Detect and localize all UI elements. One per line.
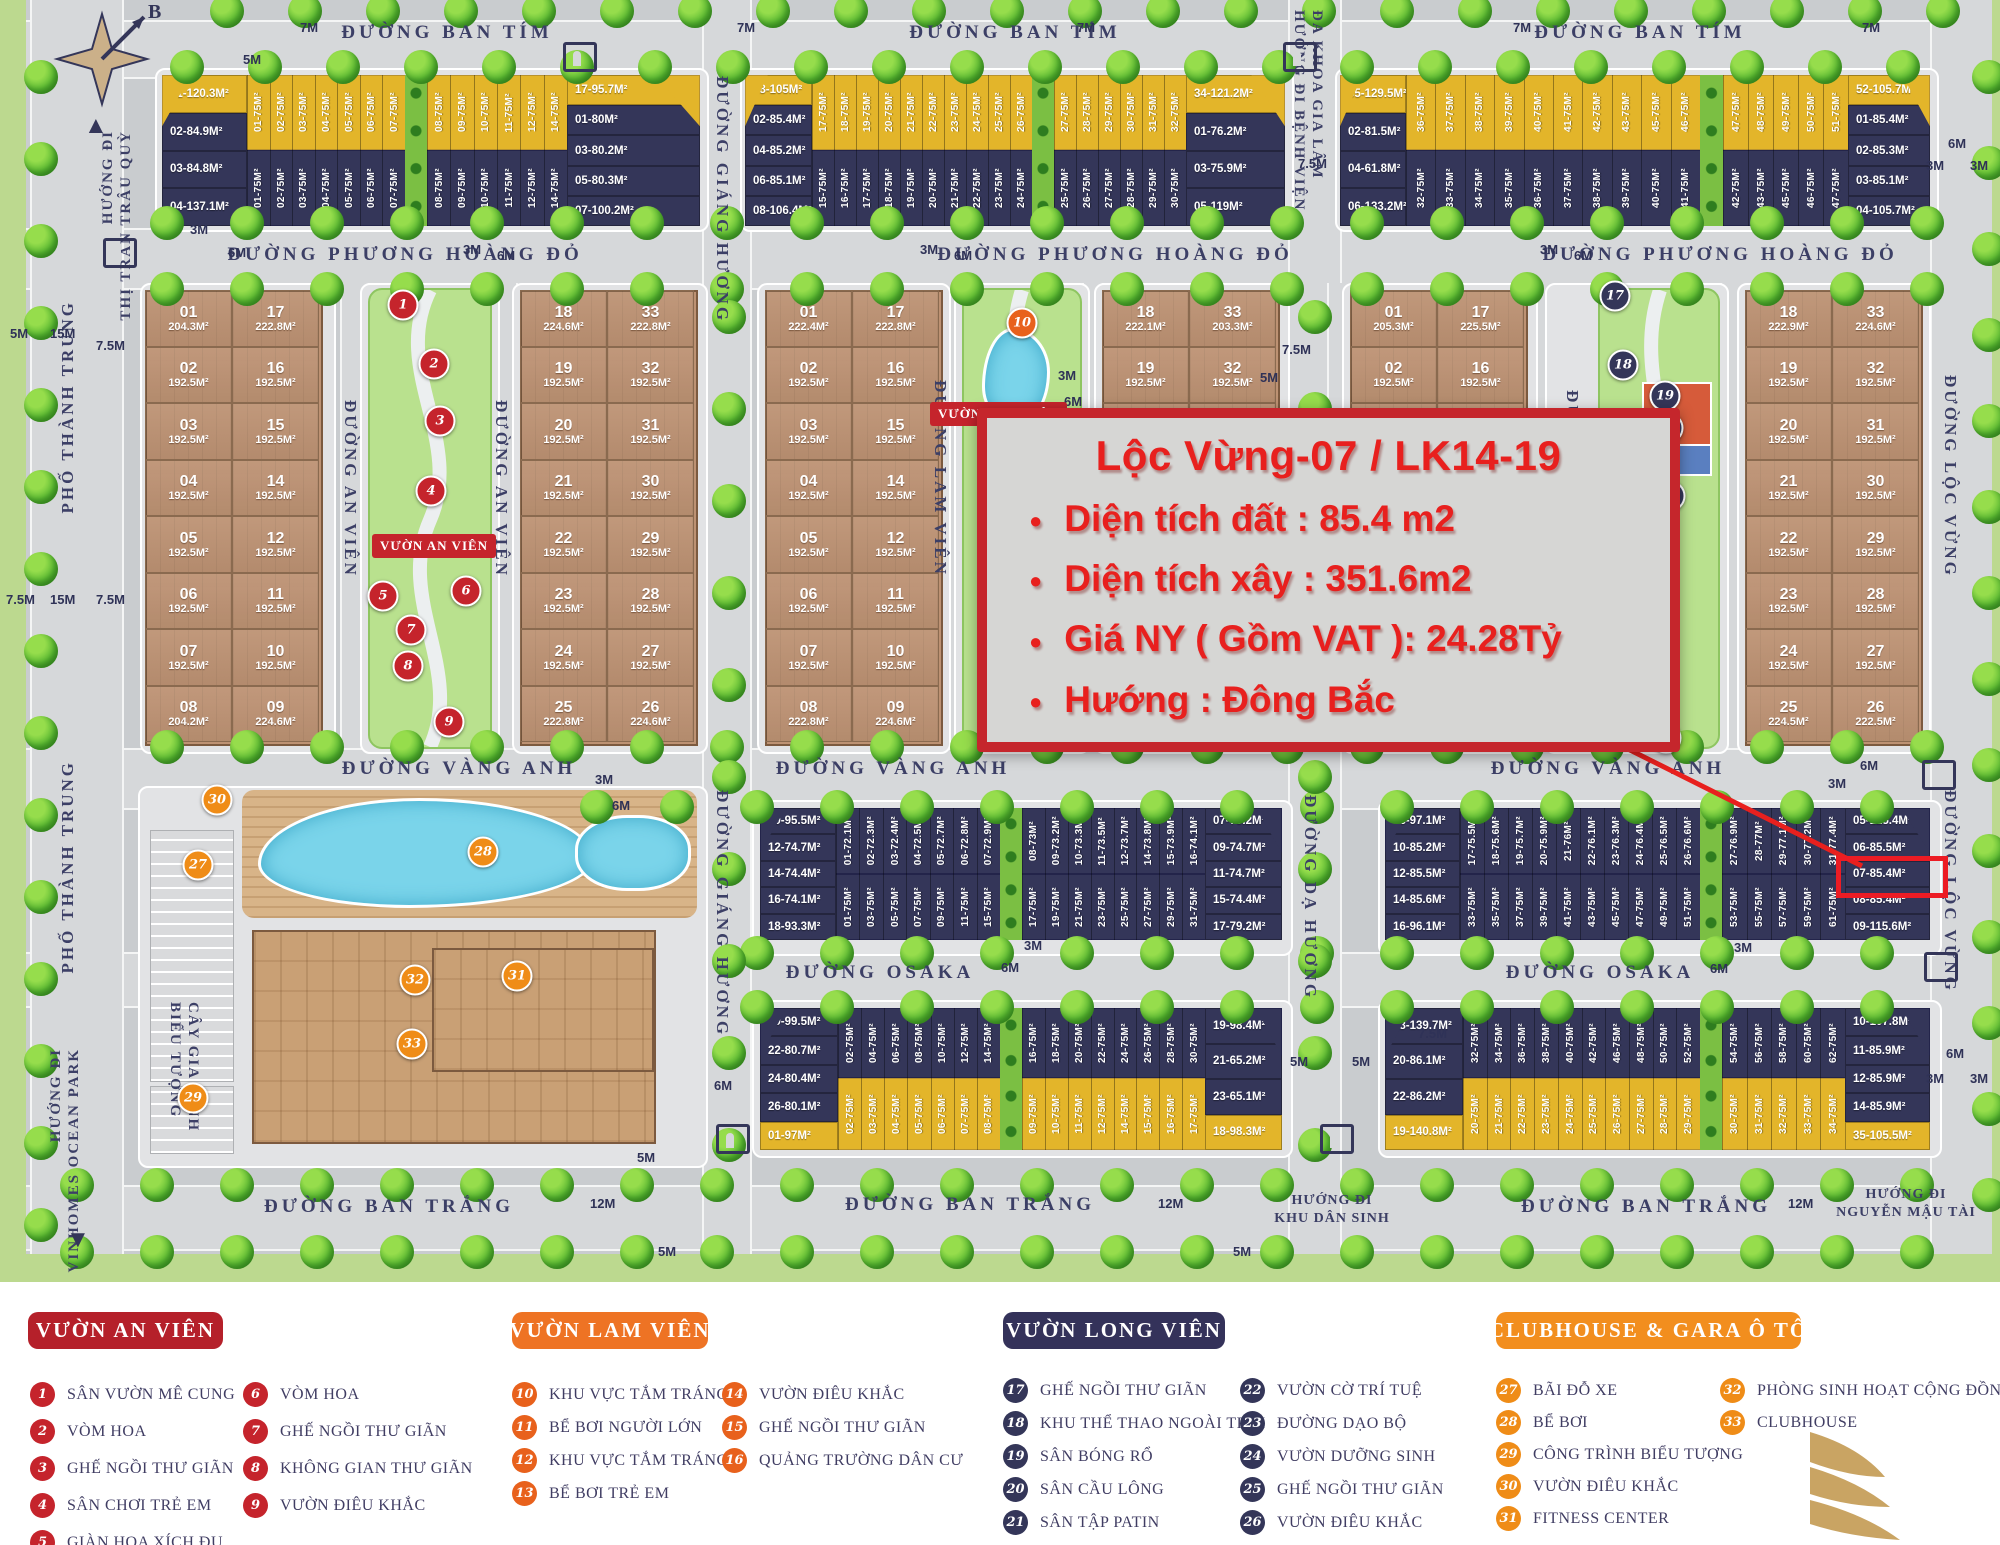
masterplan-page: Lộc Vừng-07 / LK14-19 Diện tích đất : 85… [0,0,2000,1545]
lot-area: 192.5M² [168,490,208,502]
compass-icon: B [52,4,162,124]
tree-icon [712,668,746,702]
lot-end-label: 23-65.1M² [1205,1079,1282,1115]
tree-icon [1340,50,1374,84]
legend-item: 3GHẾ NGỒI THƯ GIÃN [30,1456,234,1481]
lot-shophouse-label: 36-75M² [1416,92,1427,132]
legend-item-number: 9 [243,1493,268,1518]
tree-icon [1860,990,1894,1024]
legend-item: 7GHẾ NGỒI THƯ GIÃN [243,1419,447,1444]
lot-shophouse-label: 01-75M² [253,168,264,208]
lot-shophouse-label: 31-75M² [1754,1094,1765,1134]
lot-end-label: 02-85.3M² [1848,135,1930,165]
lot-shophouse: 20-75M² [878,75,900,150]
tree-icon [1830,272,1864,306]
lot-end-label: 22-86.2M² [1385,1079,1463,1115]
lot-shophouse: 25-75M² [988,75,1010,150]
lot-shophouse-label: 52-75M² [1683,1023,1694,1063]
lot-number: 20 [1780,417,1798,434]
tree-icon [1140,990,1174,1024]
lot-number: 16 [887,360,905,377]
legend-group-title: VƯỜN LONG VIÊN [1003,1312,1225,1349]
lot-area: 192.5M² [543,434,583,446]
dimension-label: 5M [1260,370,1278,385]
lot-shophouse-label: 38-75M² [1592,168,1603,208]
tree-icon [1972,318,2000,352]
lot-townhouse: 02192.5M² [145,347,232,404]
tree-icon [24,962,58,996]
lot-shophouse-label: 08-73M² [1028,821,1039,861]
lot-number: 21 [555,473,573,490]
lot-shophouse-label: 12-75M² [527,168,538,208]
lot-shophouse-label: 30-75M² [1189,1023,1200,1063]
dimension-label: 3M [1540,242,1558,257]
lot-end-label: 09-115.6M² [1845,914,1930,940]
tree-icon [170,50,204,84]
tree-icon [1750,206,1784,240]
lot-shophouse: 05-75M² [907,1078,930,1150]
lot-townhouse: 28192.5M² [1832,573,1919,630]
lot-shophouse-label: 08-75M² [914,1023,925,1063]
lot-townhouse: 22192.5M² [520,516,607,573]
lot-shophouse-label: 43-75M² [1756,168,1767,208]
legend-item-number: 33 [1720,1410,1745,1435]
lot-townhouse: 21192.5M² [520,460,607,517]
lot-shophouse-label: 09-75M² [1028,1094,1039,1134]
legend-item-number: 18 [1003,1411,1028,1436]
lot-number: 23 [555,586,573,603]
legend-item: 21SÂN TẬP PATIN [1003,1510,1160,1535]
lot-number: 15 [887,417,905,434]
lot-shophouse-label: 34-75M² [1494,1023,1505,1063]
lot-number: 29 [642,530,660,547]
lot-townhouse: 05192.5M² [145,516,232,573]
lot-area: 192.5M² [543,660,583,672]
lot-shophouse: 45-75M² [1604,874,1628,940]
lot-end-label: 04-85.2M² [745,135,812,165]
street-name-vertical: ĐƯỜNG AN VIÊN [340,400,360,578]
lot-shophouse: 11-75M² [497,75,520,150]
lot-townhouse: 23192.5M² [520,573,607,630]
tree-icon [872,50,906,84]
lot-end-label: 12-74.7M² [760,834,836,860]
lot-shophouse-label: 35-75M² [1491,887,1502,927]
tree-icon [820,990,854,1024]
dimension-label: 6M [954,248,972,263]
palm-divider [1700,75,1723,226]
lot-shophouse: 33-75M² [1460,874,1484,940]
tree-icon [1380,790,1414,824]
tree-icon [1580,1235,1614,1269]
map-marker-32: 32 [400,965,431,996]
lot-end-label: 10-85.2M² [1385,834,1460,860]
lot-shophouse-label: 19-75.7M² [1515,816,1526,865]
lot-shophouse: 11-75M² [953,874,976,940]
lot-shophouse: 52-75M² [1676,1008,1700,1078]
lot-info-title: Lộc Vừng-07 / LK14-19 [987,432,1670,480]
tree-icon [1972,1092,2000,1126]
lot-shophouse: 29-75M² [1098,75,1120,150]
lot-number: 11 [887,586,904,603]
map-marker-18: 18 [1608,350,1639,381]
direction-note: KHU DÂN SINH [1274,1210,1389,1227]
tree-icon [1298,300,1332,334]
lot-townhouse: 02192.5M² [1350,347,1437,404]
lot-shophouse-label: 23-76.3M² [1611,816,1622,865]
lot-number: 30 [642,473,660,490]
brand-sail-logo [1790,1422,1920,1542]
lot-shophouse-label: 33-75M² [1445,168,1456,208]
tree-icon [1740,1235,1774,1269]
tree-icon [790,206,824,240]
lot-number: 07 [180,643,198,660]
legend-item-number: 5 [30,1530,55,1545]
lot-area: 192.5M² [1768,377,1808,389]
lot-end-label: 17-79.2M² [1205,914,1282,940]
lot-shophouse: 04-75M² [884,1078,907,1150]
legend-item-number: 29 [1496,1442,1521,1467]
tree-icon [24,552,58,586]
legend-item-number: 2 [30,1419,55,1444]
lot-shophouse-label: 54-75M² [1729,1023,1740,1063]
lot-shophouse: 03-72.4M² [883,808,906,874]
lot-number: 28 [1867,586,1885,603]
tree-icon [1100,1235,1134,1269]
lot-number: 30 [1867,473,1885,490]
legend-item-label: KHÔNG GIAN THƯ GIÃN [280,1460,473,1478]
lot-shophouse: 53-75M² [1722,874,1747,940]
lot-number: 33 [1867,304,1885,321]
legend-item-number: 12 [512,1448,537,1473]
lot-number: 11 [267,586,284,603]
legend-item: 18KHU THỂ THAO NGOÀI TRỜI [1003,1411,1266,1436]
lot-shophouse: 28-75M² [1076,75,1098,150]
lot-shophouse-label: 17-75M² [862,168,873,208]
lot-shophouse: 27-75M² [1054,75,1076,150]
lot-shophouse-label: 05-72.7M² [936,816,947,865]
tree-icon [712,484,746,518]
lot-shophouse-label: 19-75M² [906,168,917,208]
lot-shophouse: 16-75M² [1022,1008,1045,1078]
grass-strip [0,1254,2000,1282]
lot-shophouse-label: 20-75M² [884,92,895,132]
tree-icon [1700,990,1734,1024]
lot-shophouse: 37-75M² [1553,150,1582,226]
lot-shophouse-label: 09-75M² [457,92,468,132]
lot-shophouse: 09-75M² [930,874,953,940]
lot-shophouse-label: 39-75M² [1621,168,1632,208]
lot-shophouse-label: 47-75M² [1635,887,1646,927]
tree-icon [712,1036,746,1070]
lot-number: 29 [1867,530,1885,547]
legend-item-label: CÔNG TRÌNH BIỂU TƯỢNG [1533,1446,1743,1464]
lot-shophouse-label: 48-75M² [1636,1023,1647,1063]
legend-item: 27BÃI ĐỖ XE [1496,1378,1618,1403]
lot-shophouse-label: 29-75M² [1104,92,1115,132]
lot-number: 22 [555,530,573,547]
lot-shophouse-label: 18-75M² [1051,1023,1062,1063]
lot-shophouse-label: 41-75M² [1563,92,1574,132]
palm-divider [1700,1008,1722,1150]
lot-shophouse-label: 33-75M² [1467,887,1478,927]
tree-icon [140,1168,174,1202]
tree-icon [1260,1168,1294,1202]
lot-shophouse: 12-75M² [954,1008,977,1078]
lot-shophouse-label: 17-75M² [818,92,829,132]
dimension-label: 7M [737,20,755,35]
lot-shophouse-label: 03-75M² [868,1094,879,1134]
lot-shophouse: 24-75M² [1010,150,1032,226]
lot-shophouse-label: 11-75M² [1074,1094,1085,1134]
lot-number: 25 [555,699,573,716]
lot-shophouse: 01-75M² [247,75,270,150]
lot-shophouse-label: 35-75M² [1504,168,1515,208]
tree-icon [630,206,664,240]
lot-shophouse-label: 21-75M² [1494,1094,1505,1134]
lot-area: 192.5M² [1855,603,1895,615]
lot-shophouse-label: 15-75M² [818,168,829,208]
lot-shophouse: 36-75M² [1406,75,1435,150]
lot-shophouse: 22-75M² [922,75,944,150]
clubhouse-wing [432,948,654,1072]
lot-shophouse-label: 49-75M² [1659,887,1670,927]
lot-shophouse-label: 49-75M² [1781,92,1792,132]
lot-number: 14 [887,473,905,490]
tree-icon [310,272,344,306]
lot-shophouse-label: 10-75M² [937,1023,948,1063]
dimension-label: 6M [228,245,246,260]
lot-end-label: 14-85.9M² [1845,1093,1930,1121]
lot-shophouse-label: 12-75M² [527,92,538,132]
lot-shophouse-label: 04-75M² [321,168,332,208]
dimension-label: 12M [590,1196,615,1211]
legend-group-title: CLUBHOUSE & GARA Ô TÔ [1496,1312,1801,1349]
lot-shophouse: 36-75M² [1510,1008,1534,1078]
tree-icon [740,990,774,1024]
lot-shophouse: 30-75M² [1120,75,1142,150]
lot-shophouse-label: 48-75M² [1756,92,1767,132]
lot-townhouse: 03192.5M² [765,403,852,460]
lot-shophouse: 20-75M² [1463,1078,1487,1150]
lot-end-label: 21-65.2M² [1205,1044,1282,1080]
lot-shophouse-label: 15-75M² [1143,1094,1154,1134]
lot-shophouse-label: 19-75M² [1051,887,1062,927]
lot-shophouse-label: 05-75M² [344,168,355,208]
lot-shophouse-label: 51-75M² [1831,92,1842,132]
lot-area: 222.9M² [1768,321,1808,333]
legend-item: 11BỂ BƠI NGƯỜI LỚN [512,1415,702,1440]
tree-icon [1100,1168,1134,1202]
lot-number: 32 [1867,360,1885,377]
lot-number: 04 [180,473,198,490]
lot-end-label: 03-75.9M² [1186,151,1285,189]
tree-icon [150,206,184,240]
street-name: ĐƯỜNG PHƯƠNG HOÀNG ĐỎ [1542,244,1897,266]
lot-townhouse: 24192.5M² [520,629,607,686]
legend-item: 25GHẾ NGỒI THƯ GIÃN [1240,1477,1444,1502]
tree-icon [1574,50,1608,84]
lot-shophouse-label: 25-75M² [994,92,1005,132]
lot-shophouse: 25-75M² [1114,874,1137,940]
lot-number: 16 [1472,360,1490,377]
lot-shophouse: 09-75M² [1022,1078,1045,1150]
lot-shophouse-label: 18-75M² [884,168,895,208]
gate-arch-icon [1320,1124,1354,1154]
tree-icon [940,1235,974,1269]
lot-shophouse-label: 30-75M² [1170,168,1181,208]
masterplan-map: Lộc Vừng-07 / LK14-19 Diện tích đất : 85… [0,0,2000,1282]
lot-shophouse: 12-75M² [520,75,543,150]
lot-shophouse: 25-76.5M² [1652,808,1676,874]
tree-icon [1820,1235,1854,1269]
lot-shophouse: 31-75M² [1142,75,1164,150]
lot-shophouse-label: 46-75M² [1806,168,1817,208]
legend-item-number: 32 [1720,1378,1745,1403]
tree-icon [1030,206,1064,240]
lot-shophouse-label: 47-75M² [1731,92,1742,132]
legend-item-number: 31 [1496,1506,1521,1531]
tree-icon [1028,50,1062,84]
legend-item-number: 21 [1003,1510,1028,1535]
lot-shophouse: 15-75M² [1136,1078,1159,1150]
lot-shophouse: 09-75M² [450,75,473,150]
lot-townhouse: 29192.5M² [607,516,694,573]
lot-shophouse: 30-75M² [1722,1078,1747,1150]
tree-icon [620,1235,654,1269]
legend-item-label: VÒM HOA [280,1386,360,1404]
legend-item: 13BỂ BƠI TRẺ EM [512,1481,669,1506]
tree-icon [24,634,58,668]
lot-shophouse-label: 42-75M² [1731,168,1742,208]
dimension-label: 12M [1788,1196,1813,1211]
tree-icon [740,790,774,824]
lot-area: 192.5M² [543,377,583,389]
lot-shophouse-label: 05-75M² [890,887,901,927]
lot-shophouse: 40-75M² [1641,150,1670,226]
dimension-label: 3M [1058,368,1076,383]
lot-shophouse: 62-75M² [1820,1008,1845,1078]
lot-area: 203.3M² [1212,321,1252,333]
tree-icon [1750,730,1784,764]
lot-shophouse: 22-75M² [1091,1008,1114,1078]
lot-shophouse: 21-75M² [1487,1078,1511,1150]
lot-end-label: 01-76.2M² [1186,113,1285,151]
lot-shophouse-label: 22-75M² [928,92,939,132]
lot-number: 08 [800,699,818,716]
map-marker-19: 19 [1650,381,1681,412]
lot-shophouse-label: 57-75M² [1778,887,1789,927]
lot-area: 222.8M² [255,321,295,333]
lot-shophouse: 05-75M² [883,874,906,940]
lot-end-label: 15-74.4M² [1205,887,1282,913]
tree-icon [1780,990,1814,1024]
lot-shophouse-label: 56-75M² [1754,1023,1765,1063]
lot-shophouse-label: 11-75M² [960,887,971,927]
tree-icon [630,272,664,306]
lot-number: 18 [1780,304,1798,321]
lot-shophouse-label: 17-75M² [1028,887,1039,927]
tree-icon [24,388,58,422]
lot-shophouse: 31-75M² [1747,1078,1772,1150]
tree-icon [1590,206,1624,240]
legend-item-number: 6 [243,1382,268,1407]
lot-shophouse: 20-75M² [922,150,944,226]
tree-icon [1972,404,2000,438]
lot-shophouse-label: 12-75M² [1097,1094,1108,1134]
legend-item-label: GHẾ NGỒI THƯ GIÃN [1277,1481,1444,1499]
lot-shophouse: 34-75M² [1820,1078,1845,1150]
lot-area: 192.5M² [1768,660,1808,672]
street-name: ĐƯỜNG BAN TRẮNG [1521,1196,1771,1218]
lot-number: 02 [180,360,198,377]
street-name: ĐƯỜNG VÀNG ANH [776,758,1010,780]
lot-shophouse: 40-75M² [1524,75,1553,150]
dimension-label: 15M [50,592,75,607]
lot-shophouse-label: 60-75M² [1803,1023,1814,1063]
lot-number: 10 [267,643,285,660]
legend-item-label: VƯỜN ĐIÊU KHẮC [759,1386,905,1404]
lot-shophouse: 25-75M² [1582,1078,1606,1150]
map-marker-3: 3 [425,406,456,437]
lot-number: 17 [267,304,285,321]
legend-item-label: PHÒNG SINH HOẠT CỘNG ĐỒNG [1757,1382,2000,1400]
lot-end-label: 04-61.8M² [1340,151,1406,189]
tree-icon [1972,748,2000,782]
lot-end-label: 12-85.9M² [1845,1065,1930,1093]
lot-shophouse: 30-75M² [1182,1008,1205,1078]
lot-shophouse-label: 29-77.1M² [1778,816,1789,865]
lot-shophouse-label: 24-75M² [1565,1094,1576,1134]
lot-area: 222.4M² [788,321,828,333]
lot-area: 192.5M² [255,547,295,559]
lot-townhouse: 28192.5M² [607,573,694,630]
lot-area: 192.5M² [168,547,208,559]
lot-townhouse: 23192.5M² [1745,573,1832,630]
dimension-label: 7.5M [1418,1026,1447,1041]
grass-strip [0,0,26,1282]
lot-shophouse-label: 29-75M² [1166,887,1177,927]
lot-shophouse-label: 46-75M² [1612,1023,1623,1063]
lot-shophouse-label: 51-75M² [1683,887,1694,927]
lot-area: 192.5M² [1768,434,1808,446]
lot-number: 18 [555,304,573,321]
tree-icon [220,1168,254,1202]
lot-area: 224.5M² [1768,716,1808,728]
tree-icon [712,576,746,610]
lot-shophouse: 27-75M² [1136,874,1159,940]
lot-townhouse: 11192.5M² [852,573,939,630]
lot-shophouse-label: 22-75M² [1097,1023,1108,1063]
legend-item-number: 13 [512,1481,537,1506]
tree-icon [1540,990,1574,1024]
legend-item-number: 19 [1003,1444,1028,1469]
lot-shophouse: 16-75M² [1159,1078,1182,1150]
lot-shophouse: 43-75M² [1580,874,1604,940]
legend-item: 10KHU VỰC TẮM TRÁNG [512,1382,729,1407]
lot-shophouse-label: 46-75M² [1680,92,1691,132]
lot-shophouse: 38-75M² [1465,75,1494,150]
lot-area: 192.5M² [875,377,915,389]
lot-area: 192.5M² [630,434,670,446]
legend-item-number: 17 [1003,1378,1028,1403]
legend-item-label: VƯỜN CỜ TRÍ TUỆ [1277,1382,1422,1400]
legend-panel: VƯỜN AN VIÊN1SÂN VƯỜN MÊ CUNG2VÒM HOA3GH… [0,1282,2000,1545]
lot-shophouse: 21-75M² [1068,874,1091,940]
dimension-label: 5M [637,1150,655,1165]
lot-shophouse-label: 27-75M² [1104,168,1115,208]
lot-shophouse-label: 01-75M² [253,92,264,132]
lot-area: 192.5M² [875,603,915,615]
